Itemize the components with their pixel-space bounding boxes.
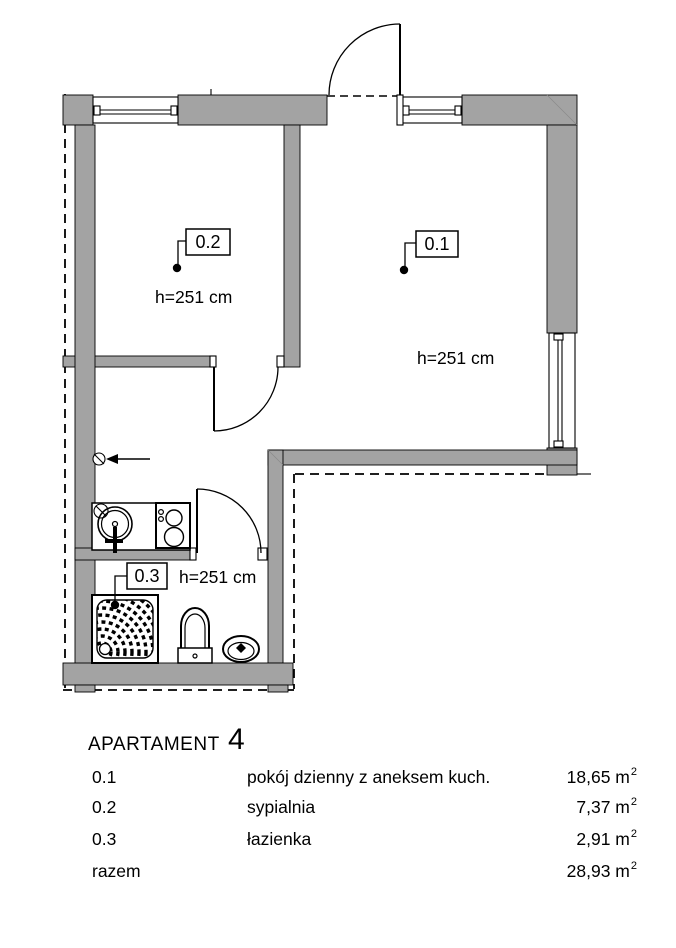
wall-top-mid [178,95,327,125]
area-sup: 2 [631,860,637,872]
window-living-right [549,333,575,448]
room-number: 0.1 [424,234,449,254]
floor-plan-drawing: 0.2 h=251 cm 0.1 h=251 cm 0.3 h=251 cm [0,0,676,710]
leader-dot [173,264,181,272]
wall-bottom [63,663,293,685]
door-swing-arc [214,367,278,431]
door-jamb [258,548,267,560]
area-value: 2,91 m [576,829,630,849]
wall-bedroom-living [284,125,300,367]
faucet-handle [105,539,123,543]
apartment-number: 4 [228,723,245,757]
door-jamb [277,356,284,367]
window-bedroom [93,97,178,123]
shower-drain [100,644,111,655]
entry-door [327,24,403,125]
toilet [178,608,212,663]
row-name: pokój dzienny z aneksem kuch. [247,767,490,788]
wall-right-upper [547,125,577,333]
row-id: 0.3 [92,829,116,850]
room-label-0-2: 0.2 h=251 cm [155,229,232,307]
door-jamb [397,95,403,125]
window-frame-end [455,106,461,115]
door-jamb [210,356,216,367]
area-sup: 2 [631,766,637,778]
table-row: 0.3 łazienka 2,91 m2 [92,829,637,851]
row-id: razem [92,861,141,882]
window-living-top [402,97,462,123]
door-jamb [190,548,196,560]
washbasin [223,636,259,662]
window-frame-end [403,106,409,115]
row-area: 7,37 m2 [576,797,637,818]
pilaster-bottom-right [268,685,288,692]
row-area: 18,65 m2 [567,767,637,788]
table-row: 0.2 sypialnia 7,37 m2 [92,797,637,819]
wall-top-right [462,95,577,125]
window-frame-end [171,106,177,115]
kitchen-counter [92,503,190,553]
area-sup: 2 [631,828,637,840]
window-frame-end [554,334,563,340]
bathroom-door [190,489,267,560]
row-name: łazienka [247,829,311,850]
room-height: h=251 cm [179,567,256,587]
bedroom-door [210,356,284,431]
door-swing-arc [329,24,400,95]
row-id: 0.2 [92,797,116,818]
leader-line [405,243,416,266]
room-number: 0.3 [134,566,159,586]
area-value: 28,93 m [567,861,630,881]
pilaster-bottom-left [75,685,95,692]
toilet-tank [178,648,212,663]
row-area: 28,93 m2 [567,861,637,882]
door-swing-arc [197,489,261,553]
floor-plan-page: 0.2 h=251 cm 0.1 h=251 cm 0.3 h=251 cm A… [0,0,676,948]
wall-hall-right [268,450,283,663]
row-area: 2,91 m2 [576,829,637,850]
wall-living-bottom [268,450,577,465]
leader-dot [400,266,408,274]
room-number: 0.2 [195,232,220,252]
wall-top-left [63,95,93,125]
table-row: 0.1 pokój dzienny z aneksem kuch. 18,65 … [92,767,637,789]
leader-dot [111,601,119,609]
arrow-head-icon [106,454,118,464]
row-id: 0.1 [92,767,116,788]
area-value: 18,65 m [567,767,630,787]
valve-symbol [93,453,150,465]
room-height: h=251 cm [417,348,494,368]
table-row-total: razem 28,93 m2 [92,861,637,883]
leader-line [178,241,186,264]
area-value: 7,37 m [576,797,630,817]
apartment-title: APARTAMENT [88,734,220,756]
room-label-0-1: 0.1 h=251 cm [400,231,495,368]
area-sup: 2 [631,796,637,808]
room-height: h=251 cm [155,287,232,307]
window-frame-end [554,441,563,447]
row-name: sypialnia [247,797,315,818]
window-frame-end [94,106,100,115]
